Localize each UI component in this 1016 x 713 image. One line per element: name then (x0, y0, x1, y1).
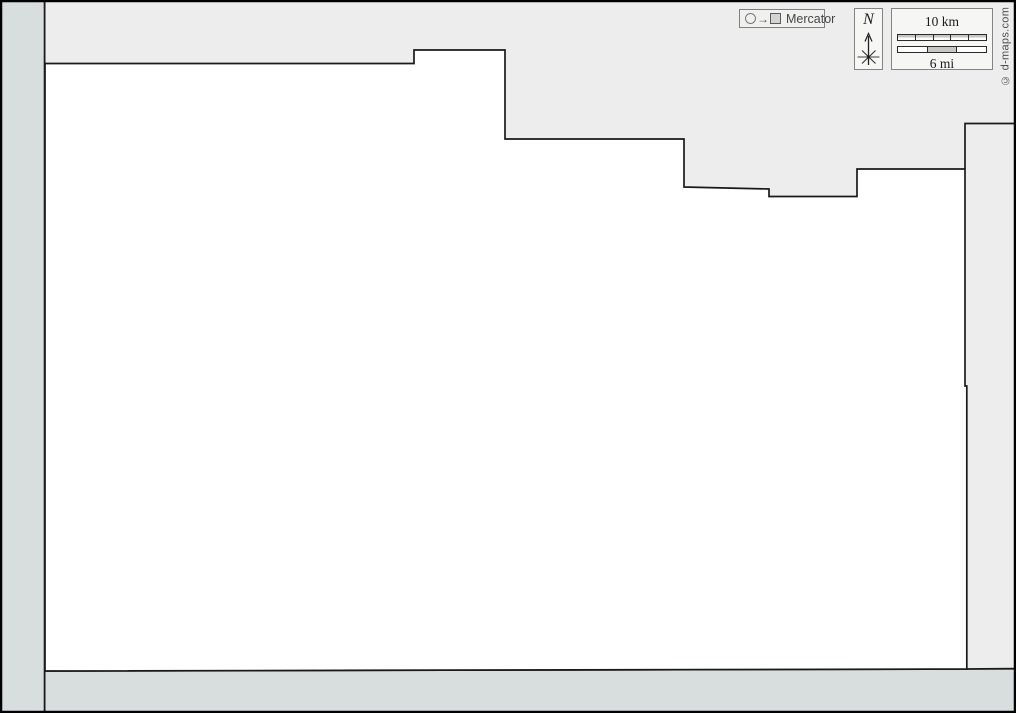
scale-bar-segment (898, 47, 927, 52)
scale-bar: 10 km 6 mi (891, 8, 993, 70)
scale-bar-segment (933, 35, 951, 40)
scale-bar-segment (915, 35, 933, 40)
projection-label: Mercator (786, 12, 835, 26)
compass-rose: N (854, 8, 883, 70)
scale-mi-label: 6 mi (892, 57, 992, 71)
arrow-right-icon: → (757, 13, 769, 25)
outline-map (0, 0, 1016, 713)
left-margin-strip (2, 2, 44, 711)
scale-km-bar (897, 34, 987, 41)
copyright-text: © d-maps.com (998, 5, 1013, 87)
scale-bar-segment (927, 47, 957, 52)
scale-km-label: 10 km (892, 15, 992, 29)
scale-bar-segment (950, 35, 968, 40)
north-label: N (855, 12, 882, 28)
scale-mi-bar (897, 46, 987, 53)
globe-circle-icon (745, 13, 756, 24)
scale-bar-segment (898, 35, 915, 40)
scale-bar-segment (956, 47, 986, 52)
projected-square-icon (770, 13, 781, 24)
map-canvas: → Mercator N 10 km 6 mi © d-maps.com (0, 0, 1016, 713)
bottom-margin-strip (45, 669, 1014, 711)
north-arrow-icon (855, 28, 882, 68)
scale-bar-segment (968, 35, 986, 40)
projection-badge: → Mercator (739, 9, 825, 28)
